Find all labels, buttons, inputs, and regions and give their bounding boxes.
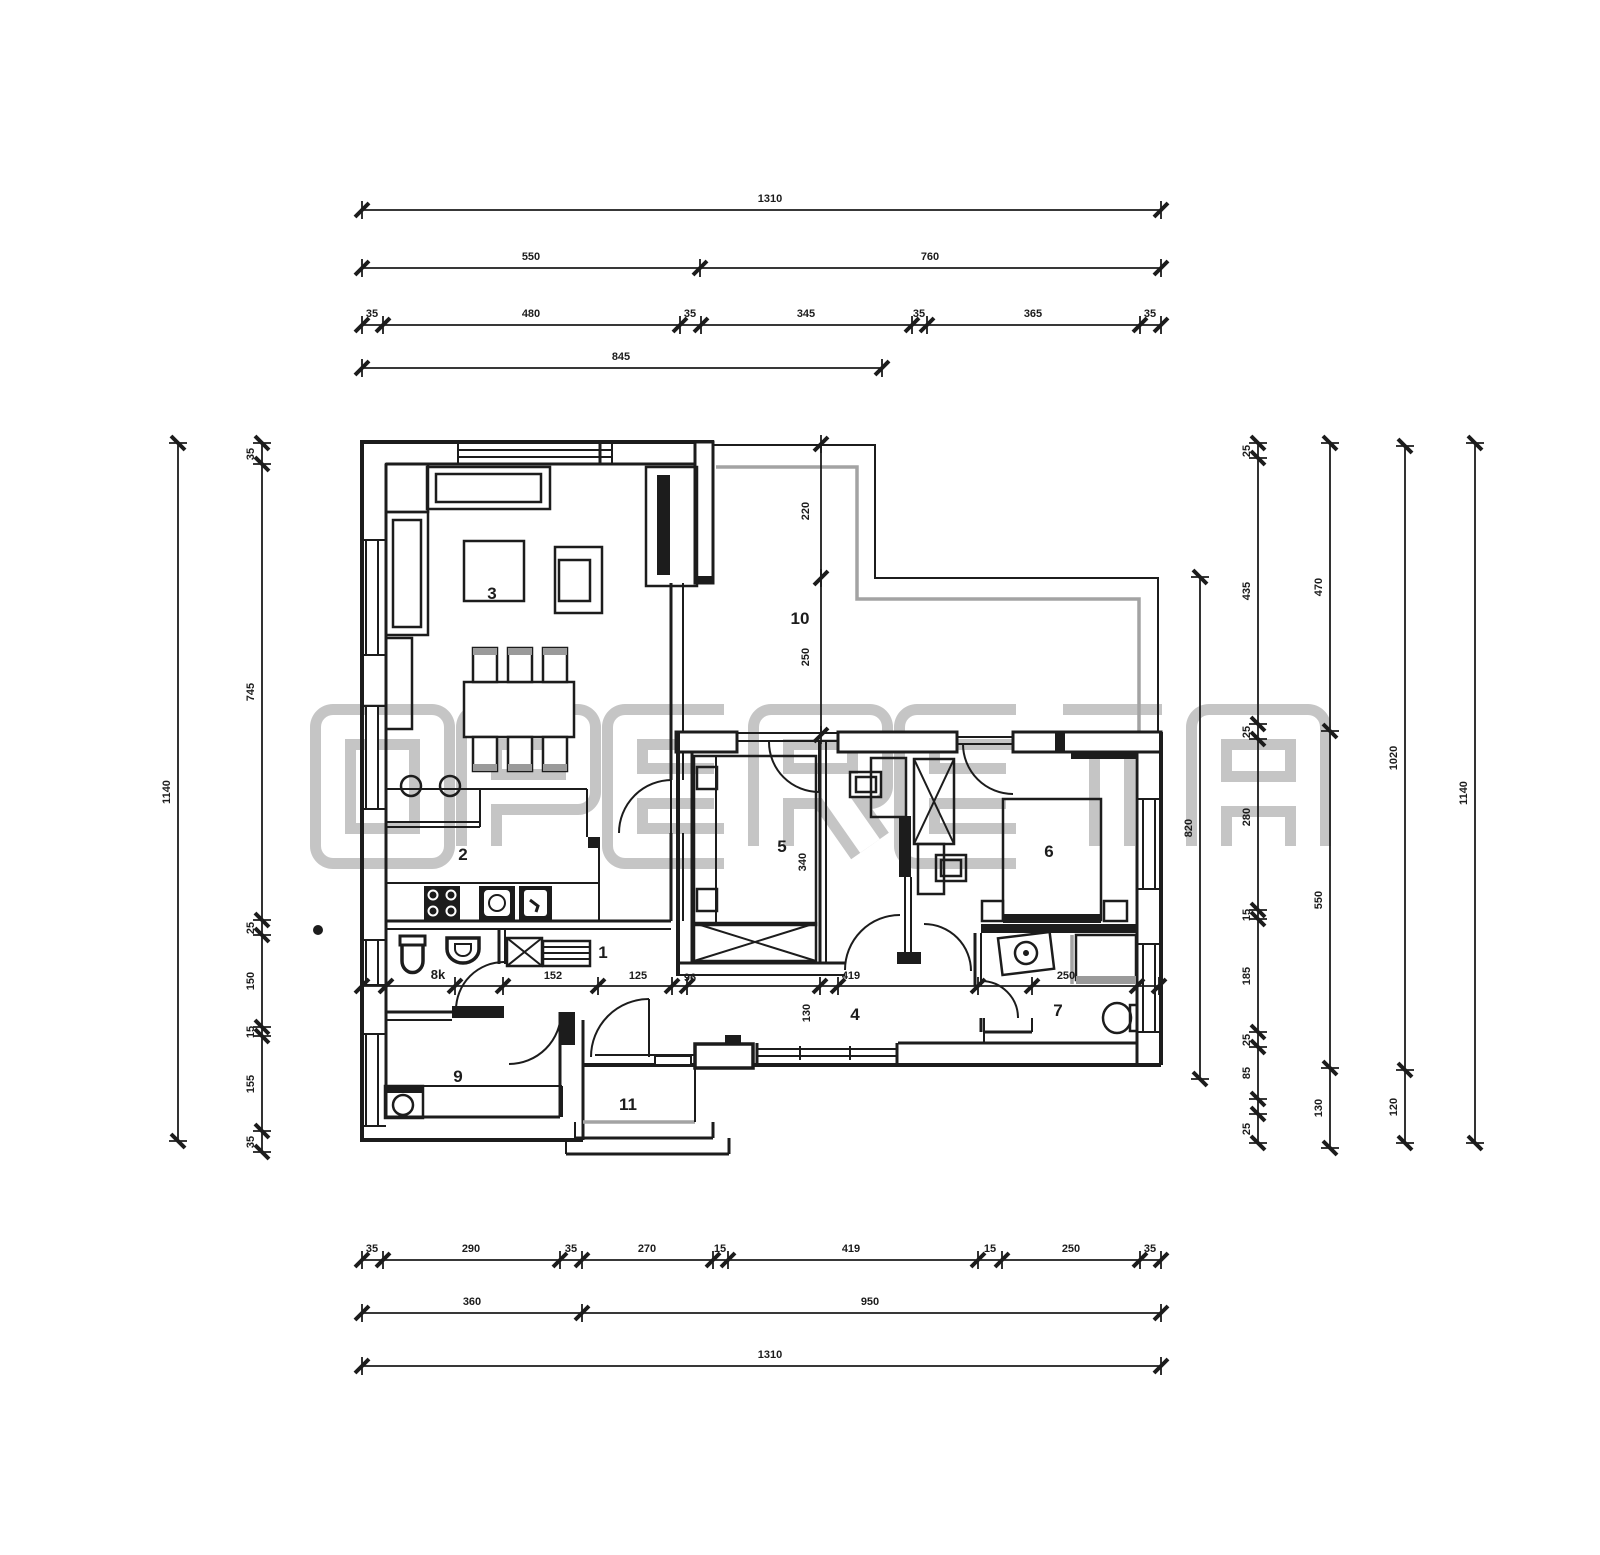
svg-text:550: 550 [1313,891,1325,909]
svg-text:7: 7 [1053,1001,1062,1020]
svg-text:950: 950 [861,1296,879,1308]
svg-text:15: 15 [714,1243,726,1255]
svg-text:1140: 1140 [1458,781,1470,805]
svg-text:125: 125 [629,970,647,982]
svg-text:1310: 1310 [758,1349,782,1361]
svg-text:250: 250 [1057,970,1075,982]
svg-text:96: 96 [684,972,696,984]
svg-text:155: 155 [245,1075,257,1093]
svg-text:35: 35 [913,308,925,320]
svg-text:130: 130 [801,1004,813,1022]
svg-text:845: 845 [612,351,630,363]
svg-text:1020: 1020 [1388,746,1400,770]
svg-text:820: 820 [1183,819,1195,837]
svg-text:35: 35 [366,1243,378,1255]
svg-text:760: 760 [921,251,939,263]
svg-text:25: 25 [245,922,257,934]
svg-text:15: 15 [245,1026,257,1038]
svg-text:35: 35 [565,1243,577,1255]
svg-text:85: 85 [1241,1067,1253,1079]
svg-text:15: 15 [1241,909,1253,921]
svg-text:280: 280 [1241,808,1253,826]
svg-text:340: 340 [797,853,809,871]
svg-text:35: 35 [684,308,696,320]
svg-text:10: 10 [791,609,810,628]
svg-text:120: 120 [1388,1098,1400,1116]
svg-text:3: 3 [487,584,496,603]
svg-text:25: 25 [1241,1034,1253,1046]
svg-text:435: 435 [1241,582,1253,600]
svg-text:150: 150 [245,972,257,990]
svg-text:290: 290 [462,1243,480,1255]
svg-text:35: 35 [366,308,378,320]
svg-text:8k: 8k [431,967,446,982]
svg-text:185: 185 [1241,967,1253,985]
svg-text:6: 6 [1044,842,1053,861]
svg-text:5: 5 [777,837,786,856]
svg-text:345: 345 [797,308,815,320]
svg-text:250: 250 [800,648,812,666]
svg-text:152: 152 [544,970,562,982]
svg-text:25: 25 [1241,1123,1253,1135]
svg-text:470: 470 [1313,578,1325,596]
svg-text:35: 35 [245,1136,257,1148]
svg-text:11: 11 [619,1095,637,1114]
svg-text:9: 9 [453,1067,462,1086]
svg-text:15: 15 [984,1243,996,1255]
svg-text:1140: 1140 [161,780,173,804]
svg-text:360: 360 [463,1296,481,1308]
svg-text:2: 2 [458,845,467,864]
svg-text:35: 35 [245,448,257,460]
svg-text:25: 25 [1241,726,1253,738]
svg-text:130: 130 [1313,1099,1325,1117]
svg-text:35: 35 [1144,1243,1156,1255]
svg-text:480: 480 [522,308,540,320]
svg-text:270: 270 [638,1243,656,1255]
svg-text:745: 745 [245,683,257,701]
svg-text:4: 4 [850,1005,860,1024]
svg-text:550: 550 [522,251,540,263]
svg-text:25: 25 [1241,445,1253,457]
svg-text:365: 365 [1024,308,1042,320]
svg-text:250: 250 [1062,1243,1080,1255]
svg-text:220: 220 [800,502,812,520]
svg-text:35: 35 [1144,308,1156,320]
svg-text:419: 419 [842,1243,860,1255]
svg-text:1: 1 [598,943,607,962]
svg-text:419: 419 [842,970,860,982]
svg-text:1310: 1310 [758,193,782,205]
